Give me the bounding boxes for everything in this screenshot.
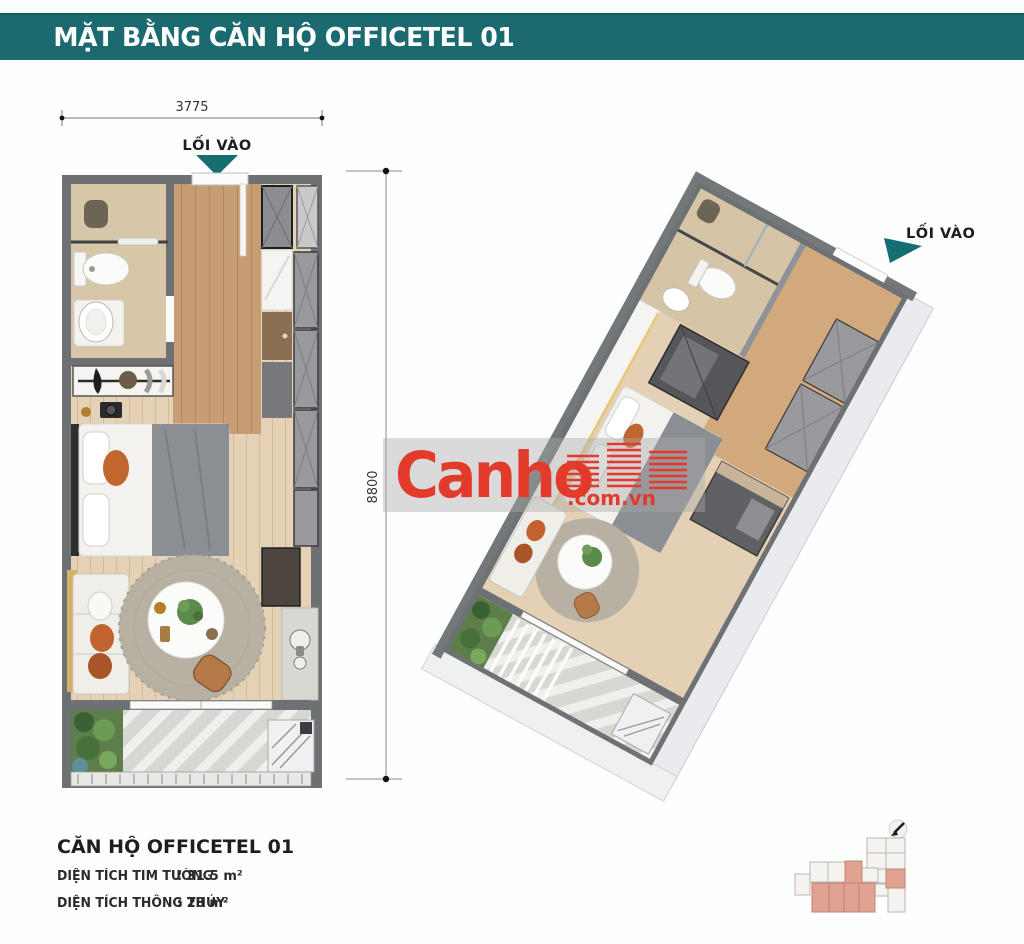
entrance-label-3d: LỐI VÀO: [906, 222, 975, 242]
bed-2d: [71, 424, 229, 556]
fridge-2d: [262, 548, 300, 606]
key-plan: [795, 820, 907, 912]
watermark-suffix: .com.vn: [567, 486, 656, 510]
header-bar: MẶT BẰNG CĂN HỘ OFFICETEL 01: [0, 13, 1024, 60]
area-label: DIỆN TÍCH TIM TƯỜNG: [57, 869, 172, 884]
balcony-plants-2d: [71, 710, 123, 774]
balcony-2d: [71, 700, 314, 786]
unit-info: CĂN HỘ OFFICETEL 01 DIỆN TÍCH TIM TƯỜNG …: [57, 836, 397, 923]
page-title: MẶT BẰNG CĂN HỘ OFFICETEL 01: [0, 23, 514, 53]
entrance-label-2d: LỐI VÀO: [182, 134, 251, 154]
area-row-net: DIỆN TÍCH THÔNG THỦY : 28 m²: [57, 896, 397, 911]
entrance-3d: LỐI VÀO: [884, 222, 975, 263]
compass-icon: [889, 820, 907, 838]
bathroom-2d: [71, 184, 174, 358]
watermark: Canho .com.vn: [383, 438, 705, 512]
shower-head: [84, 200, 108, 228]
plan-2d: 3775 LỐI VÀO: [60, 100, 402, 788]
dimension-width: 3775: [60, 100, 325, 126]
watermark-brand: Canho: [395, 444, 591, 507]
unit-title: CĂN HỘ OFFICETEL 01: [57, 836, 397, 858]
dim-width-label: 3775: [175, 100, 208, 115]
entry-door-leaf: [240, 184, 246, 256]
area-label: DIỆN TÍCH THÔNG THỦY: [57, 896, 172, 911]
area-row-gross: DIỆN TÍCH TIM TƯỜNG : 31.5 m²: [57, 869, 397, 884]
dining-area-2d: [119, 555, 265, 701]
dim-height-label: 8800: [366, 470, 381, 503]
